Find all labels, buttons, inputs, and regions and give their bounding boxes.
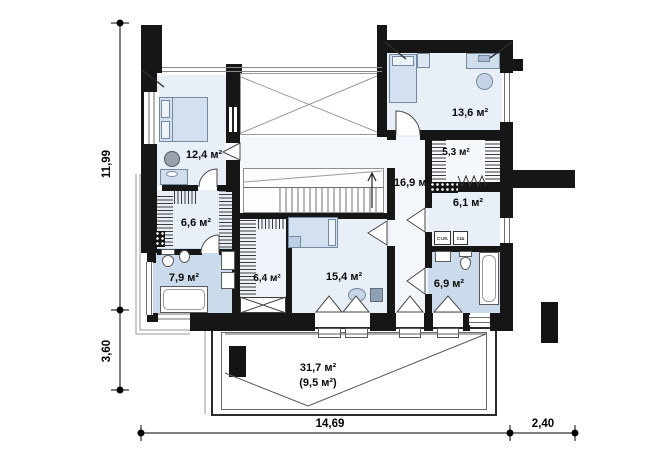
room-label-bedroom-left: 12,4 м²	[172, 149, 236, 162]
floor-plan: Ст.М. СШ	[0, 0, 655, 463]
railing-lines	[162, 68, 382, 72]
room-label-wardrobe-mid: 6,4 м²	[243, 272, 291, 285]
room-label-hall: 16,9 м²	[381, 177, 443, 190]
dimension-bottom-right: 2,40	[524, 418, 562, 430]
deck-edge-lines	[136, 174, 205, 414]
dimension-left-lower: 3,60	[101, 332, 113, 370]
stairs-direction-arrow	[368, 173, 376, 208]
room-label-terrace: 31,7 м²	[282, 362, 354, 375]
dimension-bottom-main: 14,69	[300, 418, 360, 430]
balcony-door-symbols	[316, 296, 462, 312]
stairs-treads	[244, 171, 383, 212]
dimension-left-upper: 11,99	[101, 145, 113, 183]
room-label-closet-left: 6,6 м²	[164, 217, 228, 230]
room-label-terrace-secondary: (9,5 м²)	[282, 377, 354, 390]
room-label-bathroom-left: 7,9 м²	[152, 272, 216, 285]
room-label-bedroom-topright: 13,6 м²	[438, 107, 502, 120]
room-label-bedroom-bottom: 15,4 м²	[312, 271, 376, 284]
terrace-slope-lines	[225, 334, 486, 406]
room-label-laundry: 6,1 м²	[438, 197, 498, 210]
hook-zigzag-symbol	[458, 176, 486, 186]
room-label-bathroom-right: 6,9 м²	[418, 278, 480, 291]
storage-cross-lines	[240, 297, 286, 313]
plan-linework	[0, 0, 655, 463]
void-cross-lines	[241, 76, 377, 133]
roof-slope-lines	[142, 42, 512, 87]
room-label-closet-topright: 5,3 м²	[428, 146, 484, 159]
door-swing-symbols	[199, 111, 425, 294]
